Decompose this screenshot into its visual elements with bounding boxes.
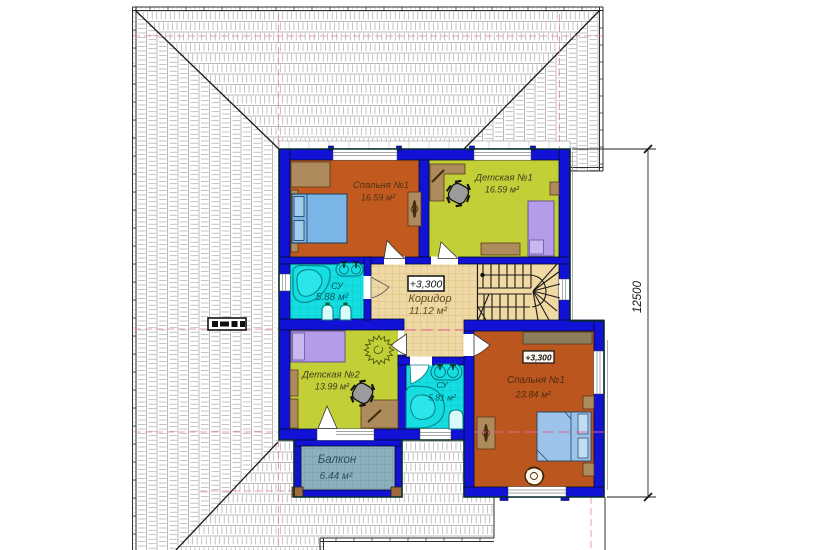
svg-text:СУ: СУ — [436, 380, 449, 390]
svg-text:Спальня №1: Спальня №1 — [507, 375, 565, 386]
svg-text:16.59 м²: 16.59 м² — [485, 185, 520, 195]
svg-text:6.44 м²: 6.44 м² — [320, 471, 353, 482]
svg-text:Детская №1: Детская №1 — [474, 173, 532, 184]
svg-text:11.12 м²: 11.12 м² — [409, 306, 448, 317]
svg-text:23.84 м²: 23.84 м² — [515, 390, 552, 400]
svg-text:Спальня №1: Спальня №1 — [353, 180, 409, 191]
svg-text:+3,300: +3,300 — [410, 279, 443, 291]
svg-text:16.59 м²: 16.59 м² — [361, 193, 396, 203]
svg-text:+3,300: +3,300 — [525, 353, 552, 363]
svg-text:13.99 м²: 13.99 м² — [315, 382, 350, 392]
svg-text:Детская №2: Детская №2 — [301, 370, 360, 381]
svg-text:5.81 м²: 5.81 м² — [428, 393, 457, 403]
svg-text:Балкон: Балкон — [318, 454, 357, 466]
svg-text:Коридор: Коридор — [408, 293, 451, 305]
svg-text:СУ: СУ — [331, 281, 344, 291]
svg-text:12500: 12500 — [632, 280, 644, 313]
svg-text:5.88 м²: 5.88 м² — [316, 292, 349, 303]
